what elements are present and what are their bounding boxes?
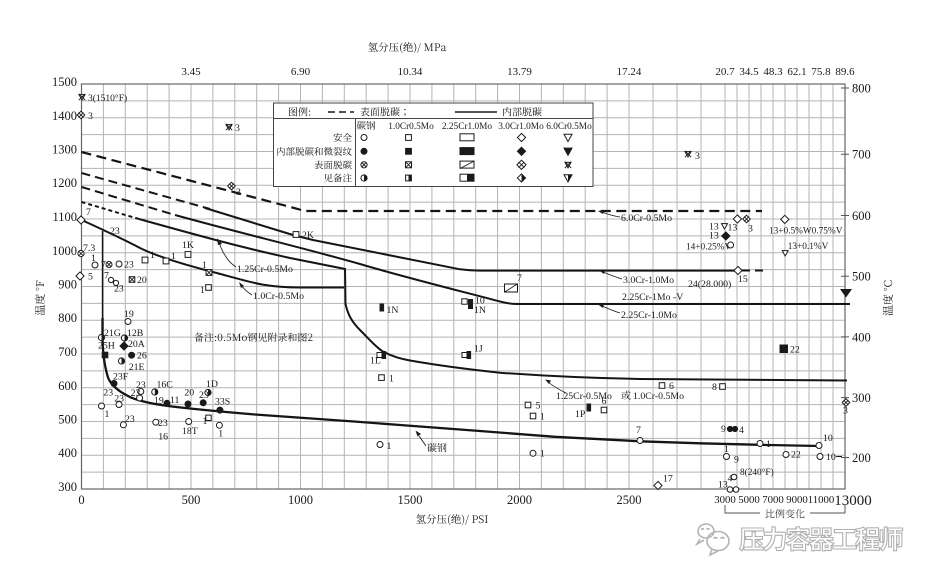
- svg-text:23: 23: [103, 388, 113, 399]
- svg-text:10.34: 10.34: [398, 66, 423, 78]
- svg-text:2K: 2K: [302, 230, 314, 241]
- svg-text:20: 20: [137, 275, 147, 286]
- svg-text:3: 3: [748, 224, 753, 235]
- svg-text:62.1: 62.1: [787, 66, 806, 78]
- svg-text:48.3: 48.3: [763, 66, 783, 78]
- svg-text:11000: 11000: [808, 494, 835, 506]
- svg-text:1.0Cr-0.5Mo: 1.0Cr-0.5Mo: [633, 391, 684, 402]
- svg-text:700: 700: [852, 148, 871, 162]
- svg-text:1: 1: [387, 441, 392, 452]
- svg-text:3: 3: [236, 187, 241, 198]
- svg-text:700: 700: [58, 345, 77, 359]
- svg-text:3.0Cr-1.0Mo: 3.0Cr-1.0Mo: [623, 275, 674, 286]
- svg-text:1300: 1300: [52, 143, 77, 157]
- svg-text:1: 1: [150, 250, 155, 261]
- svg-text:1D: 1D: [206, 379, 218, 390]
- svg-text:1: 1: [540, 449, 545, 460]
- svg-text:7: 7: [101, 260, 106, 271]
- svg-text:9: 9: [734, 455, 739, 466]
- svg-text:17.24: 17.24: [617, 66, 642, 78]
- svg-text:34.5: 34.5: [739, 66, 759, 78]
- svg-text:3.45: 3.45: [181, 66, 201, 78]
- svg-text:10: 10: [823, 433, 833, 444]
- svg-text:13: 13: [728, 223, 738, 234]
- svg-text:13.79: 13.79: [507, 66, 532, 78]
- svg-text:13: 13: [709, 231, 719, 242]
- svg-text:2.25Cr-1.0Mo: 2.25Cr-1.0Mo: [621, 310, 677, 321]
- svg-text:23: 23: [199, 390, 209, 401]
- svg-text:8(240°F): 8(240°F): [740, 467, 774, 478]
- svg-text:300: 300: [852, 391, 871, 405]
- svg-text:400: 400: [852, 330, 871, 344]
- svg-text:16C: 16C: [157, 380, 173, 391]
- svg-text:200: 200: [852, 451, 871, 465]
- svg-text:1500: 1500: [398, 493, 423, 507]
- svg-text:3(1510°F): 3(1510°F): [88, 93, 127, 104]
- svg-text:1: 1: [105, 409, 110, 420]
- svg-text:800: 800: [852, 82, 871, 96]
- svg-text:22: 22: [791, 450, 801, 461]
- svg-text:7000: 7000: [762, 494, 784, 506]
- svg-text:1500: 1500: [52, 75, 77, 89]
- svg-text:26: 26: [137, 351, 147, 362]
- svg-text:12B: 12B: [127, 328, 144, 339]
- svg-text:500: 500: [852, 270, 871, 284]
- svg-text:9: 9: [721, 424, 726, 435]
- svg-text:1100: 1100: [52, 210, 77, 224]
- svg-text:23: 23: [124, 260, 134, 271]
- svg-text:23: 23: [158, 418, 168, 429]
- svg-text:1.25Cr-0.5Mo: 1.25Cr-0.5Mo: [237, 264, 293, 275]
- svg-text:300: 300: [58, 480, 77, 494]
- svg-text:20: 20: [184, 388, 194, 399]
- svg-text:1400: 1400: [52, 109, 77, 123]
- svg-text:2500: 2500: [617, 493, 642, 507]
- svg-text:900: 900: [58, 278, 77, 292]
- svg-text:500: 500: [182, 493, 201, 507]
- svg-text:600: 600: [58, 379, 77, 393]
- svg-text:2.25Cr-1Mo -V: 2.25Cr-1Mo -V: [622, 292, 683, 303]
- svg-text:18T: 18T: [182, 426, 198, 437]
- svg-text:8: 8: [712, 382, 717, 393]
- svg-text:1N: 1N: [474, 305, 486, 316]
- svg-text:17: 17: [663, 474, 673, 485]
- svg-text:3: 3: [88, 111, 93, 122]
- svg-text:7: 7: [86, 207, 91, 218]
- svg-text:1L: 1L: [370, 356, 381, 367]
- svg-text:13+0.1%V: 13+0.1%V: [788, 242, 829, 252]
- svg-text:1P: 1P: [575, 409, 586, 420]
- svg-text:6.0Cr0.5Mo: 6.0Cr0.5Mo: [546, 122, 592, 132]
- svg-text:15: 15: [738, 274, 748, 285]
- svg-text:20A: 20A: [128, 339, 145, 350]
- svg-text:7: 7: [517, 273, 522, 284]
- svg-text:14+0.25%V: 14+0.25%V: [686, 243, 732, 253]
- svg-text:23: 23: [110, 226, 120, 237]
- svg-text:21G: 21G: [104, 328, 121, 339]
- svg-text:1: 1: [171, 251, 176, 262]
- svg-text:1: 1: [540, 412, 545, 423]
- svg-text:24(28.000): 24(28.000): [688, 279, 731, 290]
- svg-text:11: 11: [170, 395, 180, 406]
- svg-text:4: 4: [739, 425, 744, 436]
- svg-text:1K: 1K: [182, 240, 194, 251]
- svg-text:3000: 3000: [714, 494, 736, 506]
- svg-text:1000: 1000: [52, 244, 77, 258]
- svg-text:400: 400: [58, 446, 77, 460]
- svg-text:16: 16: [158, 432, 168, 443]
- svg-text:21E: 21E: [129, 362, 145, 373]
- svg-text:20.7: 20.7: [715, 66, 735, 78]
- svg-text:2000: 2000: [507, 493, 532, 507]
- svg-text:1: 1: [766, 439, 771, 450]
- svg-text:1: 1: [200, 285, 205, 296]
- svg-text:25H: 25H: [98, 341, 115, 352]
- svg-text:1.0Cr0.5Mo: 1.0Cr0.5Mo: [388, 122, 434, 132]
- svg-text:13000: 13000: [834, 493, 872, 509]
- svg-text:6.90: 6.90: [291, 66, 311, 78]
- svg-text:1000: 1000: [288, 493, 313, 507]
- svg-text:10: 10: [826, 452, 836, 463]
- svg-text:5000: 5000: [738, 494, 760, 506]
- svg-text:1N: 1N: [387, 305, 399, 316]
- svg-text:1.0Cr-0.5Mo: 1.0Cr-0.5Mo: [253, 291, 304, 302]
- svg-text:33S: 33S: [215, 397, 230, 408]
- svg-text:2.25Cr1.0Mo: 2.25Cr1.0Mo: [442, 122, 492, 132]
- svg-text:4: 4: [728, 474, 733, 485]
- svg-text:9000: 9000: [786, 494, 808, 506]
- svg-text:5: 5: [88, 272, 93, 283]
- svg-text:1: 1: [389, 374, 394, 385]
- svg-text:22: 22: [790, 345, 800, 356]
- svg-text:500: 500: [58, 413, 77, 427]
- svg-text:7: 7: [636, 425, 641, 436]
- svg-text:1200: 1200: [52, 176, 77, 190]
- svg-text:23: 23: [114, 284, 124, 295]
- svg-text:1: 1: [218, 429, 223, 440]
- svg-text:800: 800: [58, 311, 77, 325]
- svg-text:600: 600: [852, 209, 871, 223]
- svg-text:6.0Cr-0.5Mo: 6.0Cr-0.5Mo: [621, 213, 672, 224]
- svg-text:5: 5: [536, 401, 541, 412]
- svg-text:3: 3: [843, 406, 848, 417]
- svg-text:75.8: 75.8: [811, 66, 831, 78]
- svg-text:1J: 1J: [474, 344, 483, 355]
- svg-text:6: 6: [669, 381, 674, 392]
- svg-text:13: 13: [718, 480, 728, 491]
- svg-text:0: 0: [78, 493, 84, 507]
- svg-text:89.6: 89.6: [835, 66, 855, 78]
- svg-text:13+0.5%W0.75%V: 13+0.5%W0.75%V: [769, 227, 843, 237]
- svg-text:3.0Cr1.0Mo: 3.0Cr1.0Mo: [498, 122, 544, 132]
- svg-text:19: 19: [154, 395, 164, 406]
- svg-text:3: 3: [235, 123, 240, 134]
- svg-text:3: 3: [695, 151, 700, 162]
- svg-text:6: 6: [602, 396, 607, 407]
